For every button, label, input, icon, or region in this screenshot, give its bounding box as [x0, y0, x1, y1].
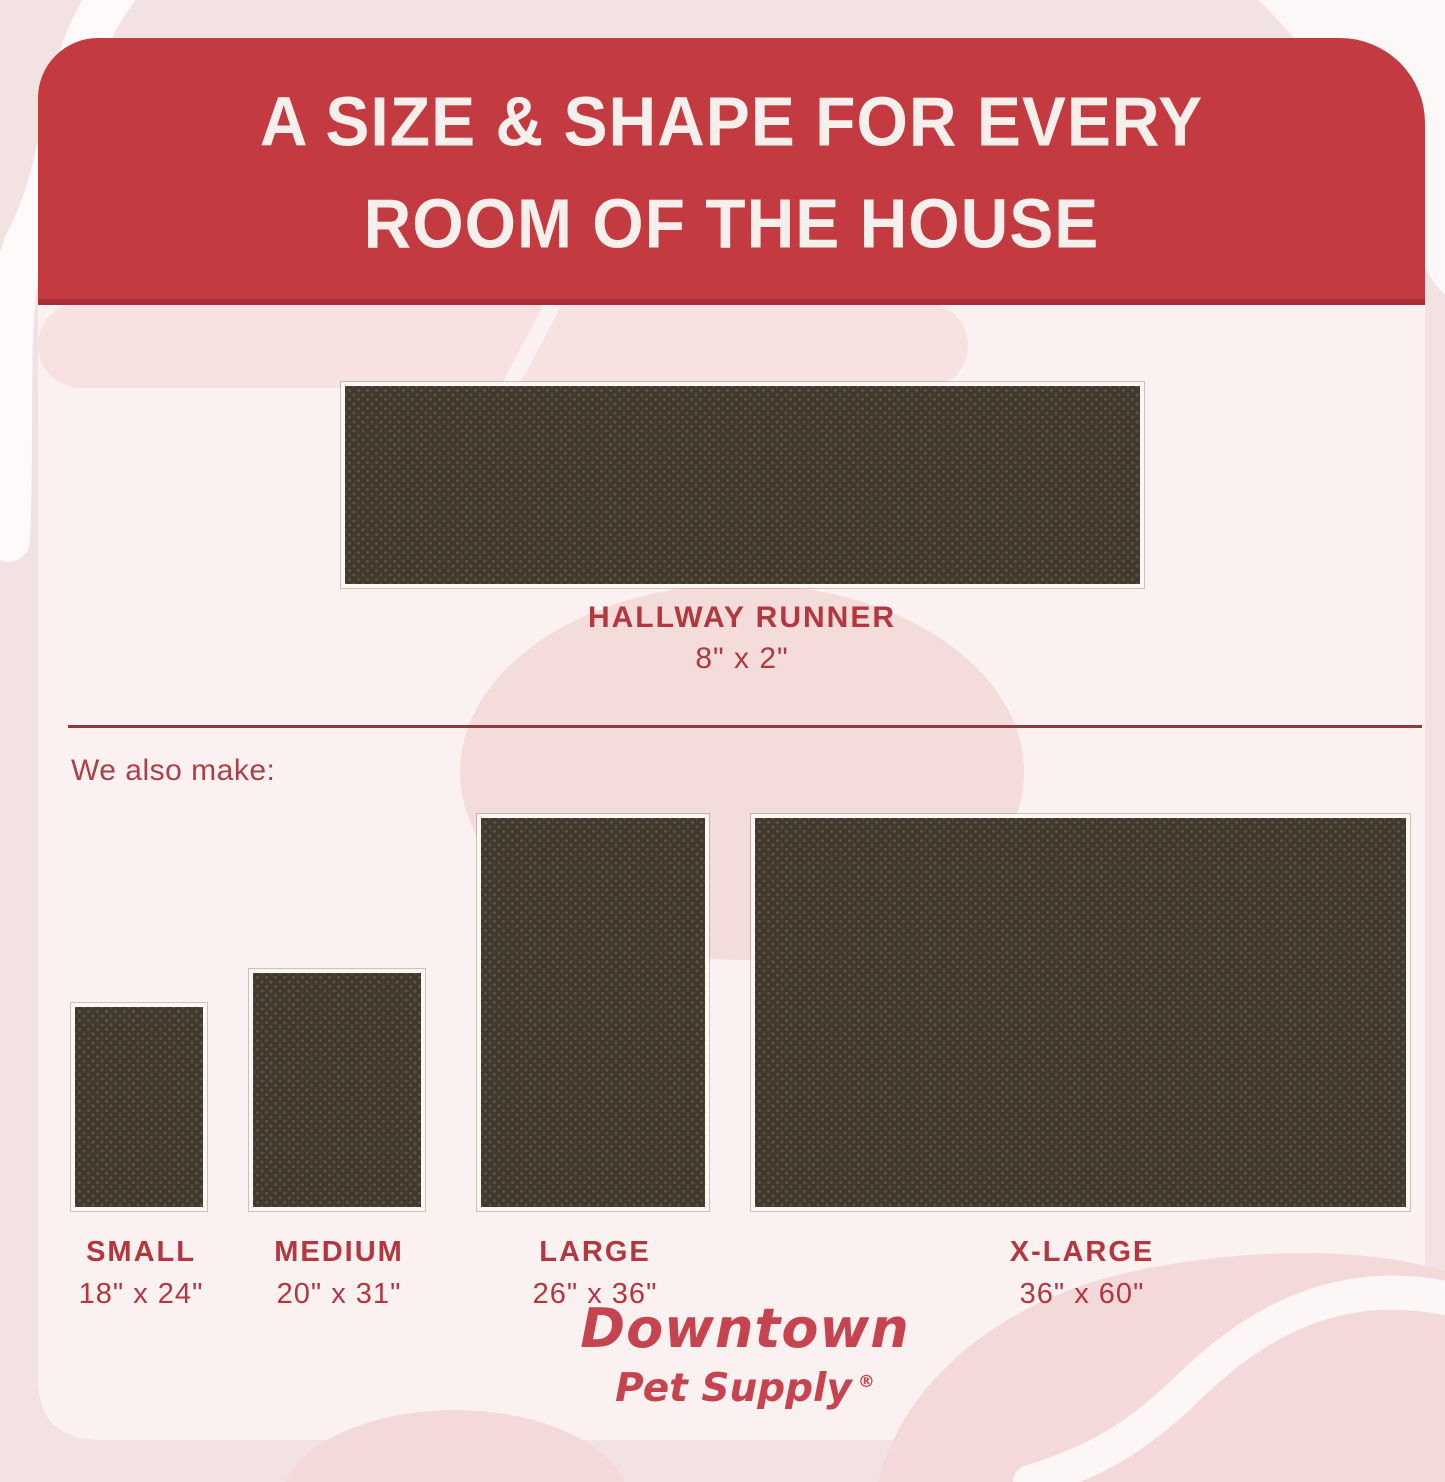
rug-small	[71, 1003, 207, 1211]
rug-medium	[249, 969, 425, 1211]
infographic-canvas: A SIZE & SHAPE FOR EVERY ROOM OF THE HOU…	[0, 0, 1445, 1482]
brand-logo-line2: Pet Supply®	[440, 1360, 1050, 1411]
hallway-runner-label: HALLWAY RUNNER 8" x 2"	[442, 601, 1042, 676]
pink-band-shape	[38, 303, 968, 388]
rug-large	[477, 814, 709, 1211]
section-divider	[68, 725, 1422, 728]
brand-logo: Downtown Pet Supply®	[440, 1300, 1050, 1411]
registered-trademark-symbol: ®	[858, 1372, 875, 1392]
page-title: A SIZE & SHAPE FOR EVERY ROOM OF THE HOU…	[260, 70, 1203, 274]
large-name: LARGE	[445, 1236, 745, 1269]
medium-name: MEDIUM	[189, 1236, 489, 1269]
rug-xlarge	[751, 814, 1410, 1211]
header-banner: A SIZE & SHAPE FOR EVERY ROOM OF THE HOU…	[38, 38, 1425, 305]
page-title-line2: ROOM OF THE HOUSE	[364, 183, 1100, 261]
we-also-make-text: We also make:	[71, 754, 275, 788]
xlarge-name: X-LARGE	[932, 1236, 1232, 1269]
rug-hallway-runner	[341, 382, 1144, 588]
hallway-runner-dims: 8" x 2"	[442, 642, 1042, 676]
hallway-runner-name: HALLWAY RUNNER	[442, 601, 1042, 635]
brand-logo-line1: Downtown	[440, 1300, 1050, 1358]
brand-logo-line2-text: Pet Supply	[615, 1366, 852, 1411]
page-title-line1: A SIZE & SHAPE FOR EVERY	[260, 81, 1203, 159]
